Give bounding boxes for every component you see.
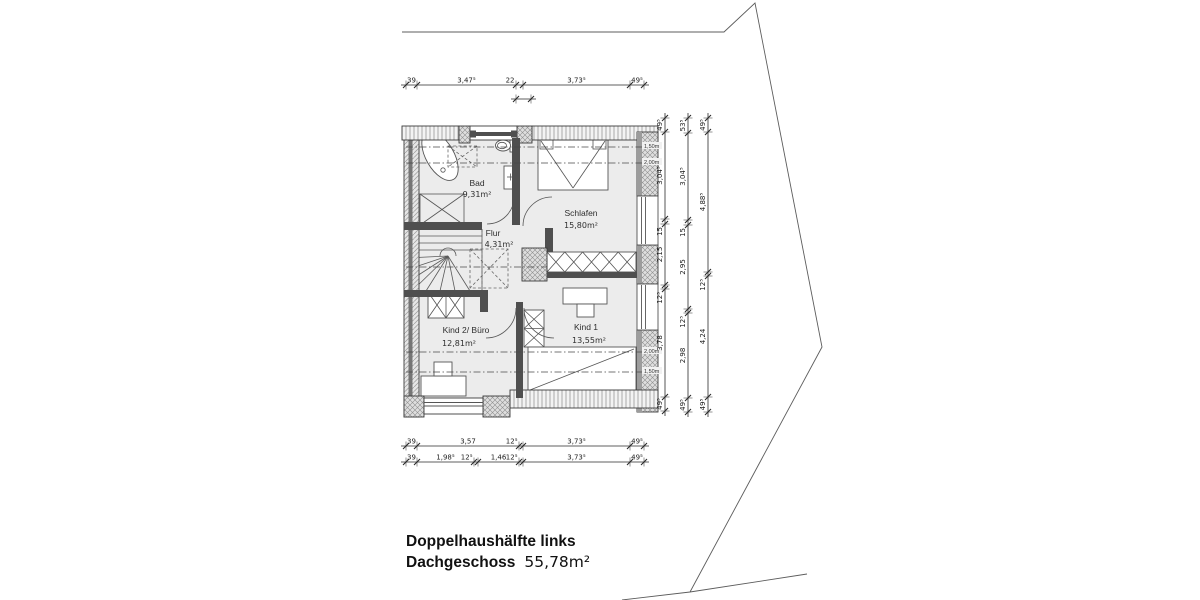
- room-name-kind2: Kind 2/ Büro: [443, 325, 490, 335]
- svg-text:3,73⁵: 3,73⁵: [567, 454, 586, 462]
- svg-text:3,04⁵: 3,04⁵: [656, 166, 664, 185]
- svg-text:22: 22: [506, 77, 515, 85]
- svg-text:12⁵: 12⁵: [506, 438, 518, 446]
- svg-text:49⁵: 49⁵: [631, 438, 643, 446]
- dim-chain-top-sub: [511, 95, 536, 104]
- room-name-kind1: Kind 1: [574, 322, 598, 332]
- wall-bad-east: [512, 138, 520, 225]
- svg-text:49⁵: 49⁵: [656, 398, 664, 410]
- svg-text:12⁵: 12⁵: [461, 454, 473, 462]
- window-kind1: [637, 284, 658, 330]
- room-name-flur: Flur: [486, 228, 501, 238]
- dim-chain-bottom-1: 393,5712⁵3,73⁵49⁵: [401, 438, 649, 451]
- height-line-label: 1,50m: [644, 369, 660, 375]
- svg-text:3,78: 3,78: [656, 335, 664, 351]
- room-area-kind2: 12,81m²: [442, 339, 476, 348]
- svg-text:1,98⁵: 1,98⁵: [436, 454, 455, 462]
- dim-chain-right-3: 49⁵4,88⁵12⁵4,2449⁵: [699, 113, 713, 417]
- window-kind2: [424, 398, 483, 414]
- height-line-label: 2,00m: [644, 160, 660, 166]
- wall-kind2-top: [404, 290, 488, 297]
- svg-text:3,04⁵: 3,04⁵: [679, 167, 687, 186]
- wardrobe-symbol-schlafen: [547, 252, 636, 272]
- svg-text:3,47⁵: 3,47⁵: [457, 77, 476, 85]
- svg-text:2,98: 2,98: [679, 348, 687, 364]
- bed-symbol-kind1: [528, 347, 636, 392]
- svg-text:2,15: 2,15: [656, 247, 664, 263]
- svg-text:4,88⁵: 4,88⁵: [699, 193, 707, 212]
- wall-bad-flur: [404, 222, 482, 230]
- svg-text:12⁵: 12⁵: [679, 316, 687, 328]
- room-name-schlafen: Schlafen: [564, 208, 597, 218]
- svg-text:1,46: 1,46: [491, 454, 507, 462]
- total-area-value: 55,78m²: [524, 553, 590, 571]
- svg-text:3,73⁵: 3,73⁵: [567, 77, 586, 85]
- svg-text:49⁵: 49⁵: [699, 119, 707, 131]
- plan-title: Doppelhaushälfte links: [406, 533, 576, 550]
- wall-stub-flur-west: [480, 290, 488, 312]
- svg-text:12⁵: 12⁵: [699, 279, 707, 291]
- floor-plan-drawing: 1,50m2,00m2,00m1,50m Bad 9,31m² Schlafen…: [0, 0, 1200, 600]
- title-block: Doppelhaushälfte links Dachgeschoss55,78…: [406, 533, 590, 571]
- wall-kind1-kind2: [516, 302, 523, 398]
- svg-text:39: 39: [407, 77, 416, 85]
- window-bad: [470, 126, 517, 140]
- plan-subtitle: Dachgeschoss55,78m²: [406, 553, 590, 571]
- bed-symbol-schlafen: [538, 140, 608, 190]
- window-schlafen: [637, 196, 658, 245]
- height-line-label: 1,50m: [644, 144, 660, 150]
- wall-block-center: [522, 248, 547, 281]
- svg-text:49⁵: 49⁵: [699, 398, 707, 410]
- svg-text:49⁵: 49⁵: [679, 399, 687, 411]
- room-name-bad: Bad: [469, 178, 484, 188]
- svg-text:49⁵: 49⁵: [631, 454, 643, 462]
- svg-text:39: 39: [407, 438, 416, 446]
- svg-text:3,57: 3,57: [460, 438, 476, 446]
- svg-text:39: 39: [407, 454, 416, 462]
- svg-text:2,95: 2,95: [679, 259, 687, 275]
- room-area-kind1: 13,55m²: [572, 336, 606, 345]
- svg-text:49⁵: 49⁵: [656, 119, 664, 131]
- room-area-schlafen: 15,80m²: [564, 221, 598, 230]
- svg-text:15: 15: [679, 228, 687, 237]
- dim-chain-top: 393,47⁵223,73⁵49⁵: [401, 77, 649, 90]
- svg-text:4,24: 4,24: [699, 328, 707, 344]
- svg-text:3,73⁵: 3,73⁵: [567, 438, 586, 446]
- svg-text:15: 15: [656, 227, 664, 236]
- wall-schlafen-kind1: [547, 272, 637, 278]
- floor-plan-page: 1,50m2,00m2,00m1,50m Bad 9,31m² Schlafen…: [0, 0, 1200, 600]
- room-area-flur: 4,31m²: [485, 240, 514, 249]
- svg-text:49⁵: 49⁵: [631, 77, 643, 85]
- room-area-bad: 9,31m²: [463, 190, 492, 199]
- svg-text:12⁵: 12⁵: [506, 454, 518, 462]
- dim-chain-right-2: 53⁵3,04⁵152,9512⁵2,9849⁵: [679, 113, 693, 417]
- svg-text:12⁵: 12⁵: [656, 292, 664, 304]
- svg-text:53⁵: 53⁵: [679, 119, 687, 131]
- dim-chain-bottom-2: 391,98⁵12⁵1,4612⁵3,73⁵49⁵: [401, 454, 649, 467]
- wardrobe-symbol-kind1: [524, 310, 544, 347]
